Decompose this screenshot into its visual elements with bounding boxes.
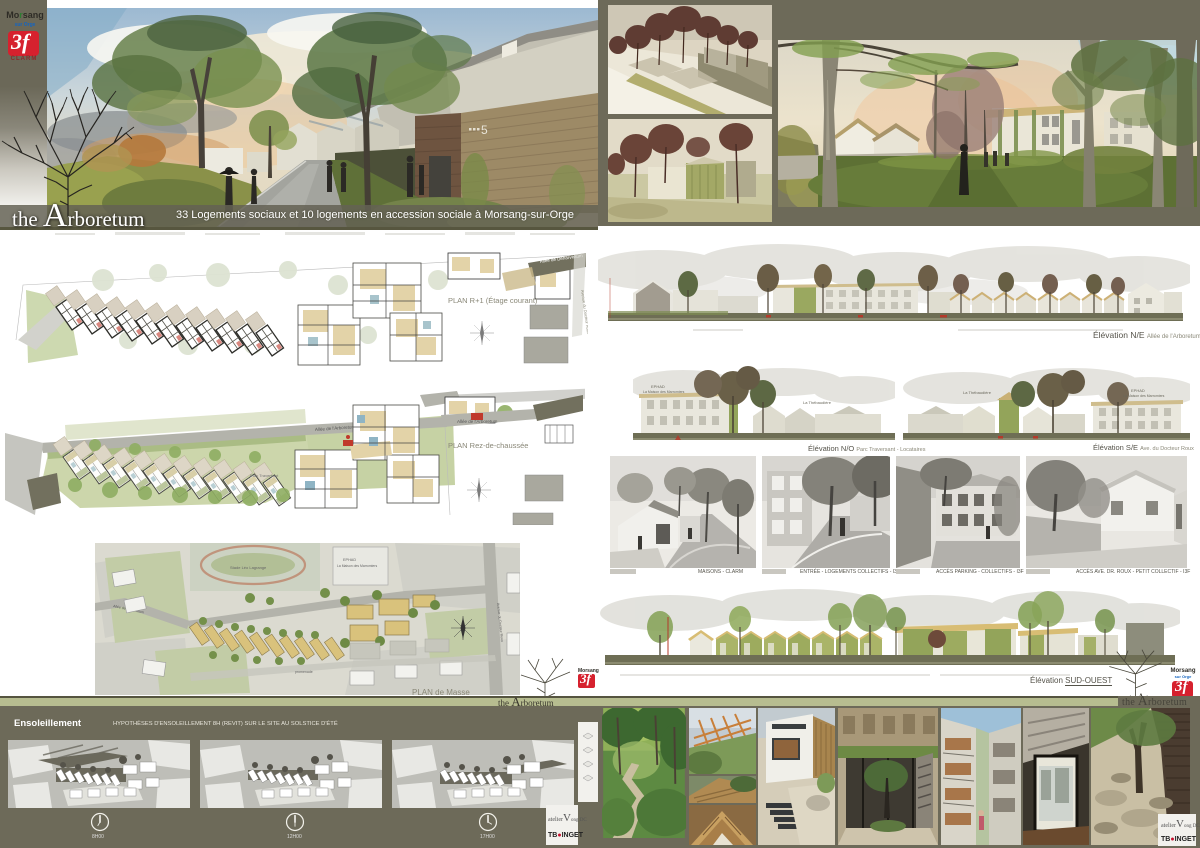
- svg-text:La Thébaudière: La Thébaudière: [963, 390, 992, 395]
- svg-text:EPHAD: EPHAD: [1131, 388, 1145, 393]
- svg-text:EPHAD: EPHAD: [343, 558, 356, 562]
- svg-text:Stade Léo Lagrange: Stade Léo Lagrange: [230, 565, 267, 570]
- svg-text:La Maison des Marromiers: La Maison des Marromiers: [337, 564, 377, 568]
- svg-text:5: 5: [481, 123, 488, 137]
- svg-text:Parc Traversant: Parc Traversant: [250, 473, 279, 478]
- svg-text:La Thébaudière: La Thébaudière: [803, 400, 832, 405]
- svg-text:La Maison des Marromiers: La Maison des Marromiers: [1123, 394, 1165, 398]
- svg-text:PLAN Rez-de-chaussée: PLAN Rez-de-chaussée: [448, 441, 528, 450]
- svg-text:La Maison des Marromiers: La Maison des Marromiers: [643, 390, 685, 394]
- svg-text:PLAN R+1 (Étage courant): PLAN R+1 (Étage courant): [448, 296, 538, 305]
- svg-text:promenade: promenade: [295, 670, 313, 674]
- svg-text:EPHAD: EPHAD: [651, 384, 665, 389]
